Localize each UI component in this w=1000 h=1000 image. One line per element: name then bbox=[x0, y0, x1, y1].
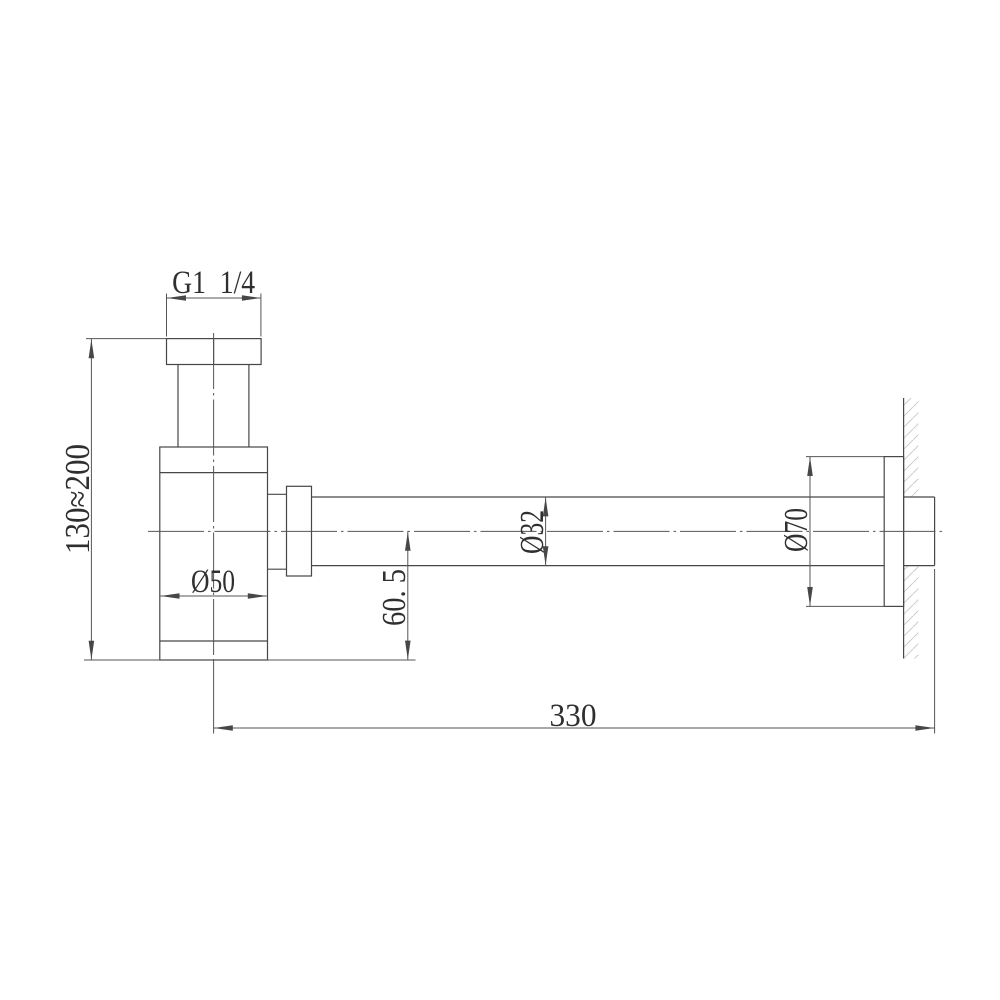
svg-text:G1 1/4: G1 1/4 bbox=[172, 265, 255, 301]
svg-text:Ø70: Ø70 bbox=[778, 508, 815, 552]
svg-text:Ø50: Ø50 bbox=[191, 564, 235, 600]
svg-text:60. 5: 60. 5 bbox=[376, 569, 413, 626]
svg-text:130≈200: 130≈200 bbox=[58, 444, 97, 554]
svg-text:330: 330 bbox=[550, 698, 597, 734]
svg-text:Ø32: Ø32 bbox=[514, 510, 551, 554]
